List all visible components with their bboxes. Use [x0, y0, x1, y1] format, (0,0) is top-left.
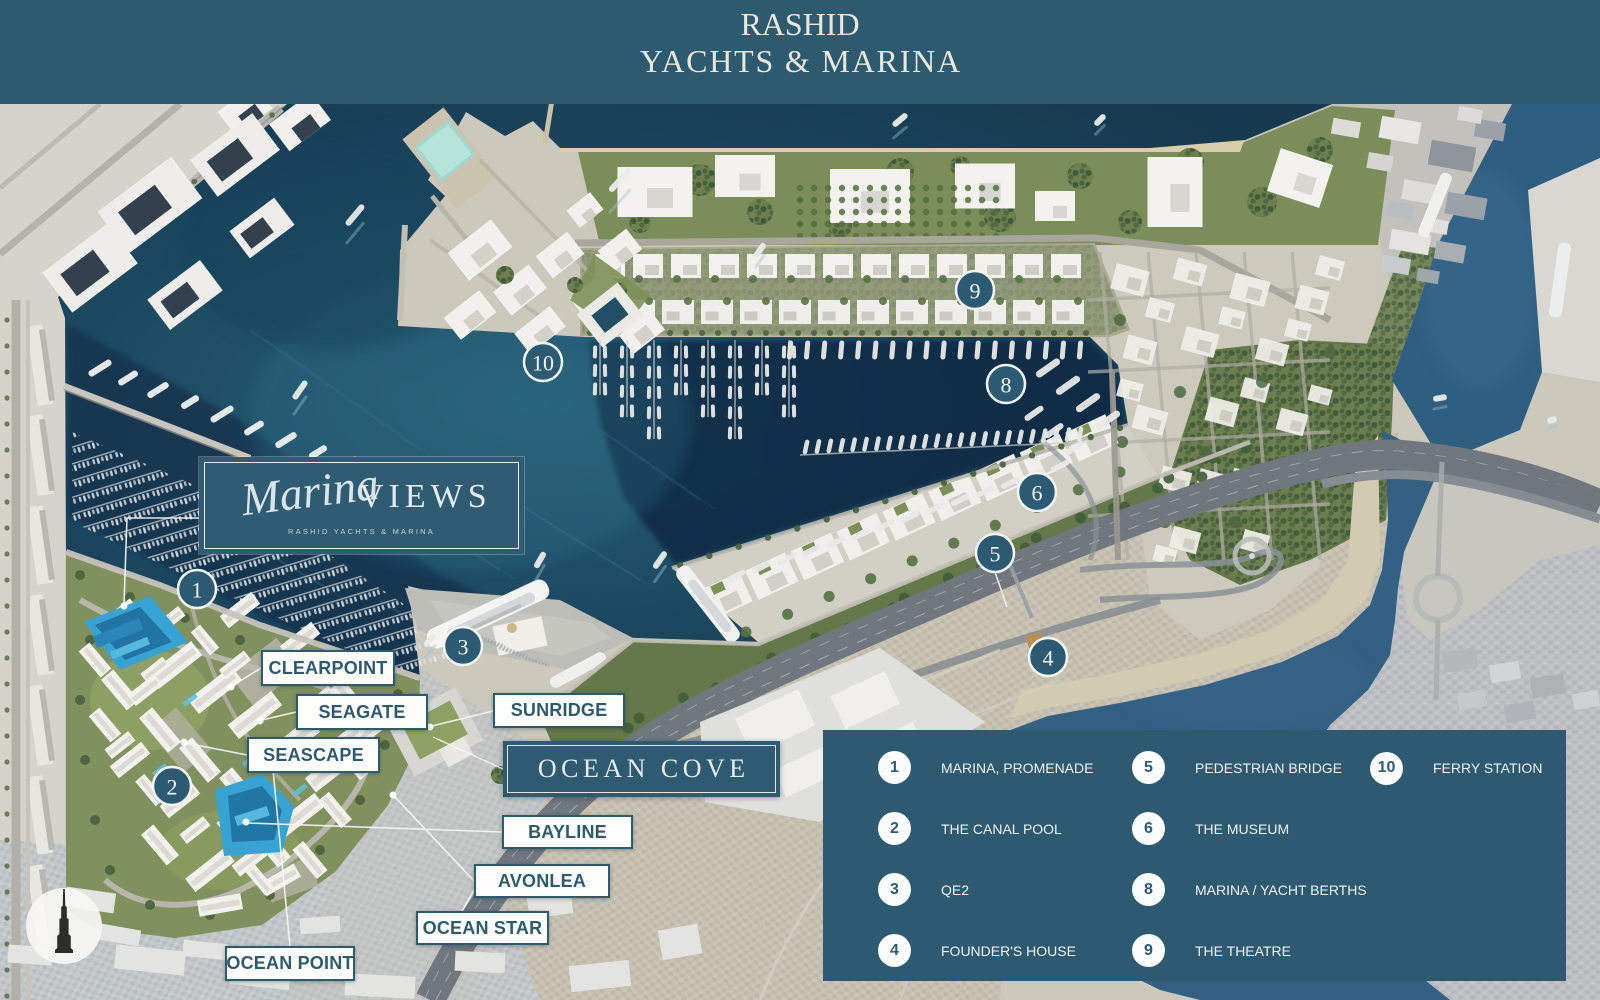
svg-text:6: 6: [1032, 481, 1043, 506]
svg-text:9: 9: [970, 279, 981, 304]
svg-text:10: 10: [532, 351, 554, 376]
svg-text:5: 5: [990, 542, 1001, 567]
svg-text:1: 1: [192, 578, 203, 603]
svg-text:2: 2: [167, 775, 178, 800]
svg-text:8: 8: [1001, 373, 1012, 398]
svg-text:4: 4: [1043, 646, 1054, 671]
svg-text:3: 3: [458, 635, 469, 660]
